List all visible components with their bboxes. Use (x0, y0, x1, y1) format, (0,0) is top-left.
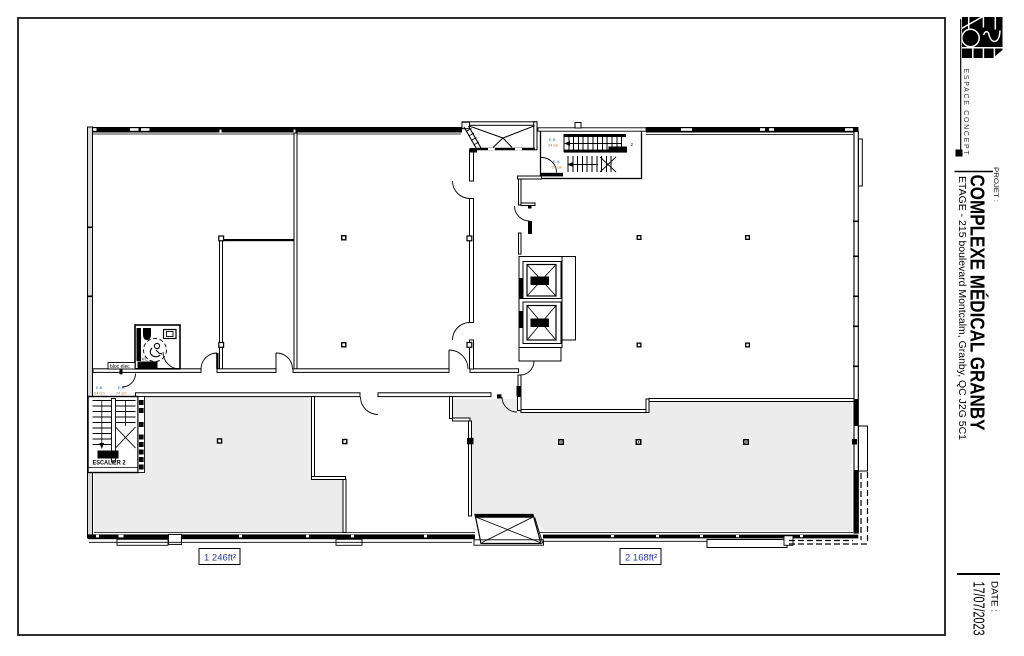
svg-text:ESCALIER 2: ESCALIER 2 (93, 460, 126, 467)
svg-text:ETAGE - 215 boulevard Montcalm: ETAGE - 215 boulevard Montcalm, Granby, … (956, 176, 967, 440)
svg-text:E.H.: E.H. (118, 385, 126, 390)
svg-text:bloc élec: bloc élec (110, 364, 130, 370)
svg-text:ESPACE CONCEPT: ESPACE CONCEPT (962, 69, 969, 157)
svg-text:E.H.: E.H. (553, 160, 560, 164)
svg-text:24 cm: 24 cm (116, 391, 127, 396)
svg-text:1 246ft²: 1 246ft² (204, 553, 236, 564)
svg-text:DATE :: DATE : (989, 581, 1000, 612)
svg-text:VC: VC (142, 357, 149, 362)
svg-text:17/07/2023: 17/07/2023 (970, 582, 987, 636)
svg-text:PROJET :: PROJET : (992, 167, 999, 202)
svg-text:COMPLEXE MÉDICAL GRANBY: COMPLEXE MÉDICAL GRANBY (965, 175, 988, 431)
svg-text:E.B.: E.B. (96, 385, 103, 390)
svg-text:24 cm: 24 cm (548, 144, 558, 148)
svg-text:24 cm: 24 cm (552, 166, 562, 170)
svg-text:24 cm: 24 cm (94, 391, 105, 396)
svg-text:2 168ft²: 2 168ft² (625, 553, 657, 564)
svg-text:E.B.: E.B. (549, 138, 556, 142)
